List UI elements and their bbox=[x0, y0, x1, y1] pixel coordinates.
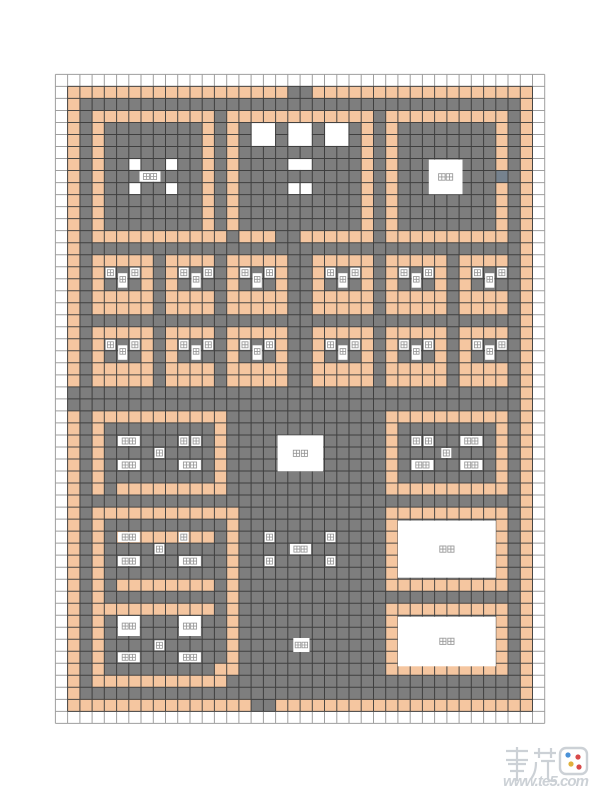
svg-text:www.te5.com: www.te5.com bbox=[503, 773, 589, 790]
